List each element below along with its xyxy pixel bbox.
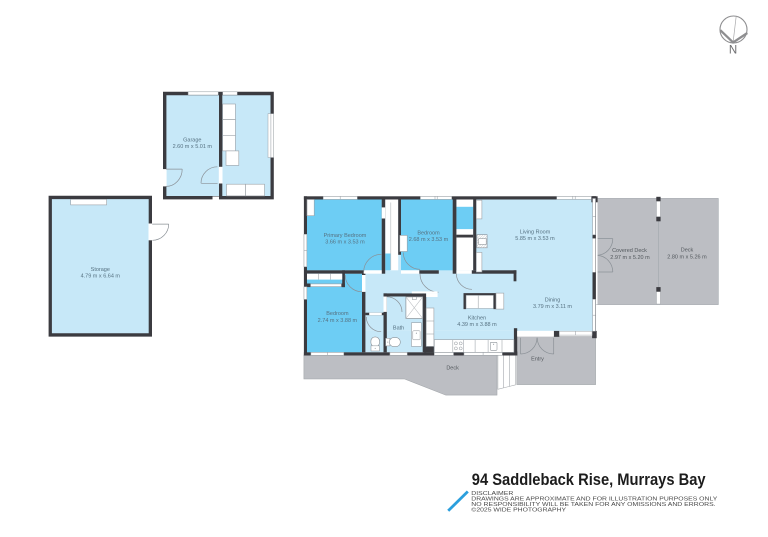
svg-text:Living Room: Living Room	[520, 230, 551, 236]
svg-text:94 Saddleback Rise, Murrays Ba: 94 Saddleback Rise, Murrays Bay	[472, 470, 706, 489]
svg-text:4.39 m x 3.88 m: 4.39 m x 3.88 m	[457, 322, 497, 328]
svg-text:Deck: Deck	[681, 248, 694, 254]
svg-text:Storage: Storage	[91, 267, 110, 273]
svg-text:Entry: Entry	[531, 356, 544, 362]
svg-text:Deck: Deck	[446, 366, 459, 372]
svg-text:4.79 m x 6.64 m: 4.79 m x 6.64 m	[81, 274, 121, 280]
svg-text:Bedroom: Bedroom	[326, 311, 349, 317]
svg-text:3.79 m x 3.11 m: 3.79 m x 3.11 m	[533, 304, 572, 310]
svg-text:5.85 m x 3.53 m: 5.85 m x 3.53 m	[515, 236, 555, 242]
svg-text:Garage: Garage	[183, 138, 201, 144]
svg-text:Dining: Dining	[545, 298, 561, 304]
svg-text:2.74 m x 3.88 m: 2.74 m x 3.88 m	[318, 318, 358, 324]
svg-text:Bath: Bath	[393, 326, 404, 332]
svg-text:N: N	[729, 45, 737, 57]
svg-text:2.68 m x 3.53 m: 2.68 m x 3.53 m	[409, 237, 449, 243]
svg-text:2.60 m x 5.01 m: 2.60 m x 5.01 m	[173, 144, 213, 150]
svg-text:Covered Deck: Covered Deck	[612, 248, 647, 254]
svg-text:3.66 m x 3.53 m: 3.66 m x 3.53 m	[325, 240, 365, 246]
svg-text:©2025 WIDE PHOTOGRAPHY: ©2025 WIDE PHOTOGRAPHY	[471, 507, 566, 514]
svg-text:Primary Bedroom: Primary Bedroom	[324, 233, 367, 239]
svg-text:Kitchen: Kitchen	[468, 316, 486, 322]
svg-text:2.80 m x 5.26 m: 2.80 m x 5.26 m	[667, 254, 707, 260]
svg-text:2.97 m x 5.20 m: 2.97 m x 5.20 m	[610, 255, 650, 261]
svg-text:Bedroom: Bedroom	[417, 230, 440, 236]
